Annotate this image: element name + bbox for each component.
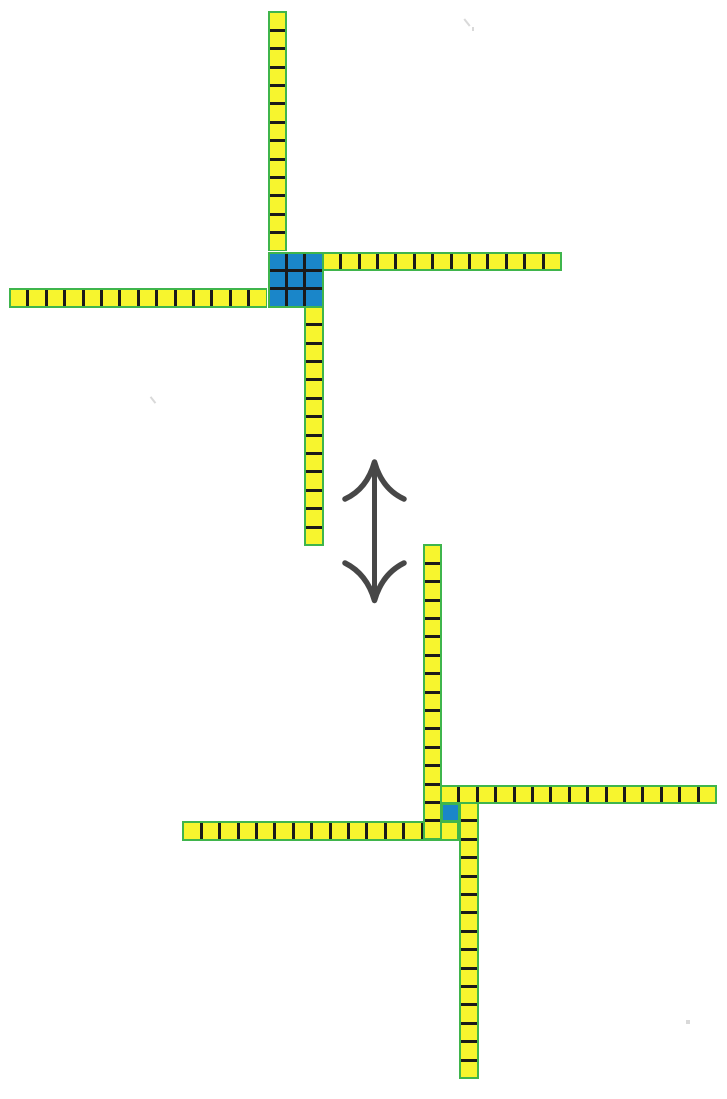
slat-cell (425, 767, 440, 782)
slat-cell (461, 804, 476, 819)
slat-cell (461, 1006, 476, 1021)
weak-state-single-overlap-cell (441, 803, 460, 822)
slat-cell (425, 730, 440, 745)
slat-cell (461, 970, 476, 985)
slat-cell (387, 823, 402, 838)
slat-cell (461, 1025, 476, 1040)
slat-cell (460, 787, 475, 802)
slat-cell (479, 787, 494, 802)
slat-cell (368, 823, 383, 838)
slat-cell (425, 657, 440, 672)
slat-cell (425, 565, 440, 580)
slat-cell (461, 1062, 476, 1077)
slat-cell (442, 823, 457, 838)
slat-cell (461, 1043, 476, 1058)
slat-cell (700, 787, 715, 802)
slat-cell (295, 823, 310, 838)
slat-cell (571, 787, 586, 802)
figure-canvas (0, 0, 727, 1099)
slat-cell (425, 583, 440, 598)
slat-cell (332, 823, 347, 838)
slat-cell (461, 878, 476, 893)
slat-cell (461, 914, 476, 929)
weak-state-assembly (0, 0, 727, 1099)
weak-state-down-slat (459, 802, 478, 1079)
slat-cell (461, 988, 476, 1003)
slat-cell (405, 823, 420, 838)
slat-cell (516, 787, 531, 802)
slat-cell (425, 602, 440, 617)
slat-cell (425, 822, 440, 837)
slat-cell (663, 787, 678, 802)
slat-cell (644, 787, 659, 802)
slat-cell (425, 749, 440, 764)
slat-cell (534, 787, 549, 802)
slat-cell (461, 896, 476, 911)
slat-cell (425, 804, 440, 819)
slat-cell (589, 787, 604, 802)
weak-state-left-slat (182, 821, 459, 840)
slat-cell (221, 823, 236, 838)
slat-cell (461, 822, 476, 837)
slat-cell (425, 694, 440, 709)
scan-artifact (472, 27, 474, 31)
scan-artifact (686, 1020, 690, 1024)
slat-cell (203, 823, 218, 838)
slat-cell (461, 859, 476, 874)
slat-cell (425, 546, 440, 561)
weak-state-up-slat (423, 544, 442, 839)
slat-cell (497, 787, 512, 802)
slat-cell (681, 787, 696, 802)
slat-cell (425, 675, 440, 690)
slat-cell (461, 951, 476, 966)
slat-cell (626, 787, 641, 802)
slat-cell (425, 712, 440, 727)
slat-cell (258, 823, 273, 838)
slat-cell (442, 787, 457, 802)
slat-cell (552, 787, 567, 802)
slat-cell (184, 823, 199, 838)
slat-cell (608, 787, 623, 802)
slat-cell (276, 823, 291, 838)
slat-cell (240, 823, 255, 838)
slat-cell (313, 823, 328, 838)
slat-cell (425, 638, 440, 653)
slat-cell (425, 620, 440, 635)
slat-cell (461, 841, 476, 856)
slat-cell (461, 933, 476, 948)
weak-state-right-slat (440, 785, 717, 804)
slat-cell (425, 786, 440, 801)
slat-cell (350, 823, 365, 838)
